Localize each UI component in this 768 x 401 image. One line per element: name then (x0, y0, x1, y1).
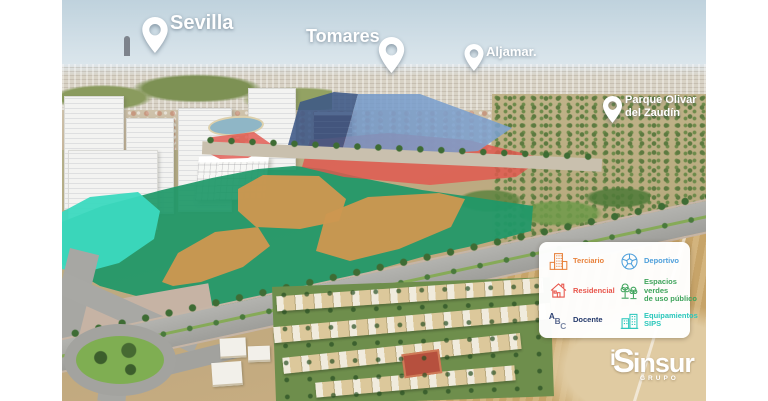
svg-text:C: C (560, 321, 566, 331)
house-icon (548, 280, 569, 301)
legend-label-docente: Docente (573, 316, 603, 325)
public-buildings-icon (619, 310, 640, 331)
parque-olivar-label: Parque Olivar del Zaudín (625, 94, 697, 120)
legend-item-deportivo: Deportivo (619, 251, 698, 272)
parque-olivar-label-line2: del Zaudín (625, 107, 697, 120)
insur-grupo-logo: i S insur GRUPO (610, 348, 694, 382)
sevilla-tower-silhouette (124, 36, 130, 56)
tomares-map-pin-icon (378, 37, 405, 78)
legend-label-residencial: Residencial (573, 287, 615, 296)
villa (211, 361, 243, 387)
tennis-court (401, 349, 442, 378)
abc-letters-icon: A B C (548, 310, 569, 331)
legend-label-equipamientos: Equipamientos SIPS (644, 312, 698, 329)
legend-item-docente: A B C Docente (548, 310, 612, 331)
townhouse-estate (272, 277, 554, 401)
townhouse-row (273, 303, 551, 343)
office-building-icon (548, 251, 569, 272)
roundabout (64, 324, 176, 396)
legend-label-espacios-line2: de uso público (644, 295, 698, 304)
sevilla-map-pin-icon (142, 17, 168, 58)
tomares-label: Tomares (306, 26, 380, 47)
parque-olivar-map-pin-icon (602, 96, 623, 128)
legend-label-espacios-line1: Espacios verdes (644, 278, 698, 295)
sevilla-label: Sevilla (170, 12, 233, 35)
legend-item-residencial: Residencial (548, 280, 612, 301)
legend-label-espacios-verdes: Espacios verdes de uso público (644, 278, 698, 304)
logo-letter-s: S (613, 348, 635, 374)
villa (248, 346, 271, 363)
trees-icon (619, 280, 640, 301)
aerial-photo: Sevilla Tomares Aljamar. Parque Olivar d… (62, 0, 706, 401)
soccer-ball-icon (619, 251, 640, 272)
logo-letter-i: i (610, 351, 616, 368)
legend-label-deportivo: Deportivo (644, 257, 679, 266)
villa (219, 337, 246, 358)
aljamar-label: Aljamar. (486, 44, 537, 59)
masterplan-aerial-image: Sevilla Tomares Aljamar. Parque Olivar d… (0, 0, 768, 401)
aljamar-map-pin-icon (464, 44, 484, 76)
legend-item-terciario: Terciario (548, 251, 612, 272)
insur-wordmark: i S insur (610, 348, 694, 374)
legend-label-terciario: Terciario (573, 257, 604, 266)
legend-label-equip-line2: SIPS (644, 320, 698, 329)
legend-item-espacios-verdes: Espacios verdes de uso público (619, 278, 698, 304)
legend-item-equipamientos: Equipamientos SIPS (619, 310, 698, 331)
logo-name: insur (633, 353, 694, 375)
townhouse-row (282, 333, 521, 374)
townhouse-row (315, 365, 516, 397)
land-use-legend: Terciario Deportivo (539, 242, 690, 338)
parque-olivar-label-line1: Parque Olivar (625, 94, 697, 107)
